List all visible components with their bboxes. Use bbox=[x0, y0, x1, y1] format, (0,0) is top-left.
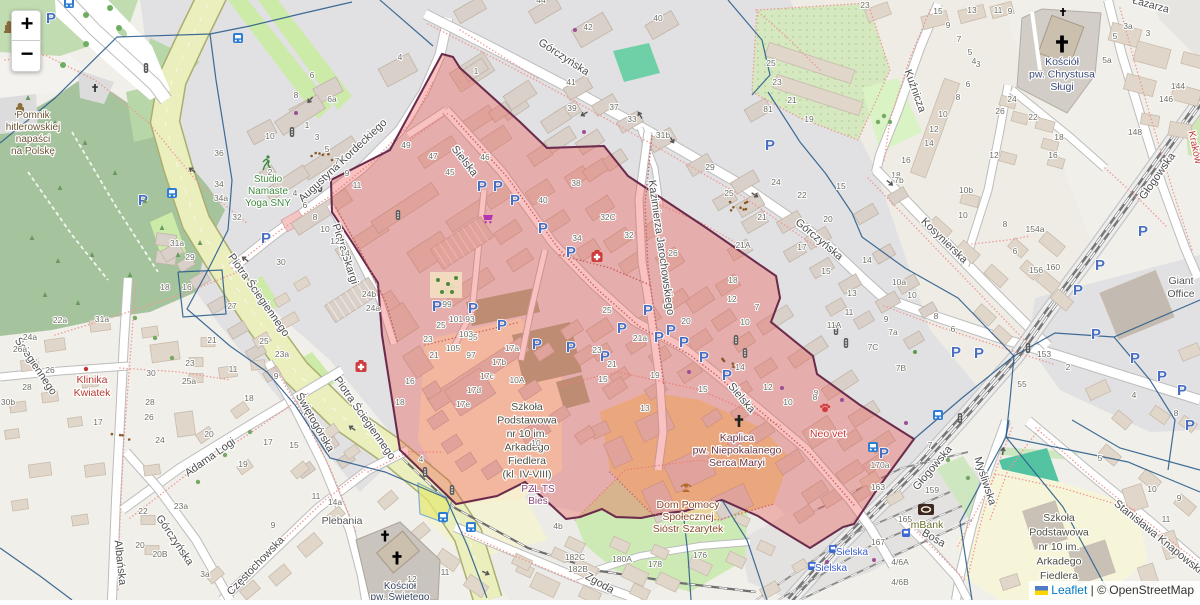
svg-text:10: 10 bbox=[531, 438, 541, 448]
svg-text:41: 41 bbox=[566, 77, 576, 87]
svg-text:146: 146 bbox=[1159, 94, 1173, 104]
svg-text:pw. Chrystusa: pw. Chrystusa bbox=[1029, 69, 1095, 81]
svg-text:32C: 32C bbox=[600, 212, 616, 222]
svg-text:P: P bbox=[477, 178, 487, 195]
svg-text:8: 8 bbox=[1003, 219, 1008, 229]
svg-text:16: 16 bbox=[901, 155, 911, 165]
svg-text:P: P bbox=[765, 137, 775, 154]
svg-text:23a: 23a bbox=[174, 501, 188, 511]
svg-text:26: 26 bbox=[45, 365, 55, 375]
svg-text:4: 4 bbox=[398, 52, 403, 62]
svg-text:P: P bbox=[974, 345, 984, 362]
svg-text:182C: 182C bbox=[565, 552, 585, 562]
svg-text:7B: 7B bbox=[896, 363, 907, 373]
svg-text:81: 81 bbox=[763, 104, 773, 114]
svg-text:24a: 24a bbox=[366, 303, 380, 313]
svg-text:26a: 26a bbox=[13, 344, 27, 354]
svg-text:23: 23 bbox=[772, 77, 782, 87]
svg-text:6: 6 bbox=[966, 79, 971, 89]
svg-text:19: 19 bbox=[804, 114, 814, 124]
svg-text:13: 13 bbox=[640, 403, 650, 413]
svg-text:Podstawowa: Podstawowa bbox=[1029, 527, 1089, 539]
svg-text:17d: 17d bbox=[467, 385, 481, 395]
svg-text:22: 22 bbox=[797, 190, 807, 200]
svg-text:11: 11 bbox=[229, 364, 238, 374]
svg-text:24: 24 bbox=[771, 177, 781, 187]
svg-text:nr 10 im.: nr 10 im. bbox=[1039, 541, 1080, 553]
svg-text:na Polskę: na Polskę bbox=[11, 146, 55, 157]
svg-text:4b: 4b bbox=[553, 521, 563, 531]
svg-text:34: 34 bbox=[214, 179, 224, 189]
svg-text:24: 24 bbox=[155, 435, 165, 445]
svg-text:12: 12 bbox=[330, 236, 340, 246]
svg-text:4: 4 bbox=[419, 454, 424, 464]
svg-text:PZL TS: PZL TS bbox=[521, 484, 555, 495]
svg-text:18: 18 bbox=[395, 397, 405, 407]
svg-text:103: 103 bbox=[459, 329, 473, 339]
svg-text:17e: 17e bbox=[456, 399, 470, 409]
svg-text:P: P bbox=[617, 320, 627, 337]
svg-text:Namaste: Namaste bbox=[248, 186, 288, 197]
svg-text:P: P bbox=[666, 322, 676, 339]
svg-text:7: 7 bbox=[755, 302, 760, 312]
svg-text:11: 11 bbox=[441, 567, 450, 577]
svg-text:P: P bbox=[510, 192, 520, 209]
svg-text:6a: 6a bbox=[327, 94, 337, 104]
svg-text:20: 20 bbox=[823, 214, 833, 224]
svg-text:15: 15 bbox=[821, 266, 831, 276]
svg-text:5a: 5a bbox=[1102, 55, 1112, 65]
svg-text:29: 29 bbox=[705, 162, 715, 172]
svg-text:23: 23 bbox=[423, 334, 433, 344]
svg-text:Kwiatek: Kwiatek bbox=[74, 387, 112, 399]
svg-text:Podstawowa: Podstawowa bbox=[497, 415, 557, 427]
svg-text:P: P bbox=[1138, 223, 1148, 240]
svg-text:P: P bbox=[432, 298, 442, 315]
svg-text:156: 156 bbox=[1029, 265, 1043, 275]
svg-text:Kaplica: Kaplica bbox=[720, 432, 755, 444]
svg-text:3: 3 bbox=[1146, 28, 1151, 38]
svg-text:Sióstr Szarytek: Sióstr Szarytek bbox=[653, 523, 724, 535]
svg-text:8: 8 bbox=[956, 92, 961, 102]
svg-text:1: 1 bbox=[474, 66, 479, 76]
svg-text:Sielska: Sielska bbox=[836, 547, 869, 558]
svg-text:P: P bbox=[643, 302, 653, 319]
svg-text:99: 99 bbox=[442, 299, 452, 309]
svg-text:Społecznej: Społecznej bbox=[662, 511, 713, 523]
svg-text:8: 8 bbox=[813, 392, 818, 402]
svg-text:17: 17 bbox=[263, 437, 273, 447]
svg-text:15: 15 bbox=[598, 374, 608, 384]
svg-text:4/6A: 4/6A bbox=[891, 557, 909, 567]
svg-text:19: 19 bbox=[238, 459, 248, 469]
svg-text:11: 11 bbox=[994, 5, 1003, 15]
svg-text:2: 2 bbox=[268, 167, 273, 177]
svg-text:37: 37 bbox=[609, 102, 619, 112]
svg-text:1: 1 bbox=[305, 120, 310, 130]
svg-text:18: 18 bbox=[1054, 132, 1064, 142]
svg-text:P: P bbox=[261, 230, 271, 247]
svg-text:22: 22 bbox=[1028, 112, 1038, 122]
svg-text:17c: 17c bbox=[480, 371, 494, 381]
svg-text:10: 10 bbox=[938, 109, 948, 119]
svg-text:17b: 17b bbox=[492, 357, 506, 367]
svg-text:167: 167 bbox=[871, 537, 885, 547]
svg-text:36: 36 bbox=[214, 148, 224, 158]
svg-text:182B: 182B bbox=[568, 564, 588, 574]
svg-text:15: 15 bbox=[698, 384, 708, 394]
svg-text:20B: 20B bbox=[152, 549, 167, 559]
svg-text:3: 3 bbox=[976, 59, 981, 69]
svg-text:24b: 24b bbox=[362, 289, 376, 299]
svg-text:23: 23 bbox=[185, 358, 195, 368]
svg-text:8: 8 bbox=[1174, 408, 1179, 418]
svg-text:10: 10 bbox=[740, 317, 750, 327]
svg-text:pw. Niepokalanego: pw. Niepokalanego bbox=[693, 445, 782, 457]
svg-text:P: P bbox=[1185, 417, 1195, 434]
svg-text:P: P bbox=[679, 334, 689, 351]
svg-text:17: 17 bbox=[93, 417, 103, 427]
svg-text:(kl. IV-VIII): (kl. IV-VIII) bbox=[502, 469, 551, 481]
svg-text:14: 14 bbox=[862, 255, 872, 265]
svg-text:5: 5 bbox=[1098, 453, 1103, 463]
svg-text:P: P bbox=[497, 317, 507, 334]
svg-text:32: 32 bbox=[624, 230, 634, 240]
svg-text:178: 178 bbox=[648, 559, 662, 569]
svg-text:23a: 23a bbox=[275, 349, 289, 359]
svg-text:22a: 22a bbox=[53, 315, 67, 325]
svg-text:4: 4 bbox=[293, 188, 298, 198]
svg-text:Kościół: Kościół bbox=[1045, 56, 1080, 68]
svg-text:49: 49 bbox=[401, 140, 411, 150]
svg-text:176: 176 bbox=[693, 550, 707, 560]
svg-text:23: 23 bbox=[860, 0, 870, 10]
svg-text:Dom Pomocy: Dom Pomocy bbox=[656, 499, 720, 511]
svg-text:45: 45 bbox=[445, 167, 455, 177]
svg-text:20: 20 bbox=[204, 429, 214, 439]
svg-text:9: 9 bbox=[345, 168, 350, 178]
svg-text:170a: 170a bbox=[871, 460, 890, 470]
svg-text:napaści: napaści bbox=[16, 134, 50, 145]
svg-text:Sługi: Sługi bbox=[1050, 81, 1073, 93]
svg-text:163: 163 bbox=[871, 482, 885, 492]
svg-text:P: P bbox=[1095, 257, 1105, 274]
svg-text:P: P bbox=[1157, 368, 1167, 385]
svg-text:P: P bbox=[1130, 350, 1140, 367]
svg-text:P: P bbox=[1073, 282, 1083, 299]
svg-text:18: 18 bbox=[728, 275, 738, 285]
svg-text:34: 34 bbox=[572, 233, 582, 243]
svg-text:P: P bbox=[1091, 326, 1101, 343]
svg-text:12: 12 bbox=[929, 124, 939, 134]
svg-text:8: 8 bbox=[934, 311, 939, 321]
svg-text:10b: 10b bbox=[959, 185, 973, 195]
svg-text:Bies: Bies bbox=[528, 496, 547, 507]
svg-text:29: 29 bbox=[185, 252, 195, 262]
svg-text:12: 12 bbox=[727, 294, 737, 304]
svg-text:154a: 154a bbox=[1026, 224, 1045, 234]
svg-text:Sielska: Sielska bbox=[815, 563, 848, 574]
svg-text:P: P bbox=[538, 220, 548, 237]
svg-text:17a: 17a bbox=[505, 343, 519, 353]
svg-text:Yoga SNY: Yoga SNY bbox=[245, 198, 291, 209]
svg-text:160: 160 bbox=[1046, 262, 1060, 272]
svg-text:7: 7 bbox=[928, 440, 933, 450]
svg-text:10a: 10a bbox=[892, 277, 906, 287]
svg-text:15: 15 bbox=[933, 6, 943, 16]
svg-text:31a: 31a bbox=[95, 314, 109, 324]
svg-text:20: 20 bbox=[681, 316, 691, 326]
svg-text:22: 22 bbox=[138, 506, 148, 516]
svg-text:21: 21 bbox=[757, 212, 767, 222]
svg-text:Plebania: Plebania bbox=[322, 515, 363, 527]
svg-text:P: P bbox=[566, 244, 576, 261]
svg-text:7C: 7C bbox=[868, 342, 879, 352]
svg-text:11: 11 bbox=[353, 180, 362, 190]
svg-text:46: 46 bbox=[480, 152, 490, 162]
svg-text:11: 11 bbox=[1162, 514, 1171, 524]
svg-text:14: 14 bbox=[735, 362, 745, 372]
svg-text:9: 9 bbox=[274, 371, 279, 381]
svg-text:21: 21 bbox=[607, 359, 617, 369]
svg-text:18: 18 bbox=[160, 282, 170, 292]
svg-text:180A: 180A bbox=[612, 554, 632, 564]
svg-text:21A: 21A bbox=[735, 240, 750, 250]
svg-text:47: 47 bbox=[428, 151, 438, 161]
svg-text:10: 10 bbox=[265, 131, 275, 141]
svg-text:nr 10 im.: nr 10 im. bbox=[507, 428, 548, 440]
svg-text:33: 33 bbox=[627, 114, 637, 124]
svg-text:P: P bbox=[532, 336, 542, 353]
svg-text:44: 44 bbox=[536, 0, 546, 5]
svg-text:165: 165 bbox=[898, 514, 912, 524]
svg-text:21: 21 bbox=[429, 350, 439, 360]
svg-text:30: 30 bbox=[146, 368, 156, 378]
svg-text:10: 10 bbox=[320, 224, 330, 234]
svg-text:40: 40 bbox=[653, 13, 663, 23]
svg-text:55: 55 bbox=[1017, 379, 1027, 389]
svg-text:6: 6 bbox=[1013, 246, 1018, 256]
svg-text:31a: 31a bbox=[170, 238, 184, 248]
svg-text:25: 25 bbox=[766, 58, 776, 68]
svg-text:19: 19 bbox=[650, 370, 660, 380]
svg-text:15: 15 bbox=[289, 440, 299, 450]
svg-text:12: 12 bbox=[989, 150, 999, 160]
svg-text:9: 9 bbox=[271, 520, 276, 530]
svg-text:13: 13 bbox=[967, 5, 977, 15]
svg-text:7: 7 bbox=[335, 156, 340, 166]
svg-text:97: 97 bbox=[466, 350, 476, 360]
svg-text:28: 28 bbox=[145, 397, 155, 407]
svg-text:153: 153 bbox=[1037, 349, 1051, 359]
svg-text:10: 10 bbox=[783, 397, 793, 407]
svg-text:8: 8 bbox=[313, 212, 318, 222]
svg-text:Serca Maryi: Serca Maryi bbox=[709, 457, 765, 469]
svg-text:105: 105 bbox=[446, 343, 460, 353]
svg-text:12: 12 bbox=[763, 382, 773, 392]
svg-text:4: 4 bbox=[1132, 390, 1137, 400]
svg-text:25: 25 bbox=[436, 320, 446, 330]
svg-text:Szkoła: Szkoła bbox=[511, 401, 543, 413]
svg-text:9: 9 bbox=[1008, 6, 1013, 16]
svg-text:26: 26 bbox=[668, 248, 678, 258]
svg-text:16: 16 bbox=[405, 376, 415, 386]
svg-text:4/6B: 4/6B bbox=[891, 577, 909, 587]
svg-text:12: 12 bbox=[407, 574, 417, 584]
svg-text:P: P bbox=[722, 367, 732, 384]
svg-text:pw. Świętego: pw. Świętego bbox=[371, 590, 430, 600]
svg-text:P: P bbox=[1177, 382, 1187, 399]
svg-text:11A: 11A bbox=[827, 320, 842, 330]
svg-text:Office: Office bbox=[1167, 288, 1194, 300]
svg-text:24a: 24a bbox=[23, 332, 37, 342]
svg-text:3a: 3a bbox=[1123, 21, 1133, 31]
svg-text:38: 38 bbox=[571, 178, 581, 188]
svg-text:P: P bbox=[951, 344, 961, 361]
svg-text:7a: 7a bbox=[888, 327, 898, 337]
svg-text:14: 14 bbox=[924, 138, 934, 148]
svg-text:Arkadego: Arkadego bbox=[505, 442, 550, 454]
svg-text:3a: 3a bbox=[200, 569, 210, 579]
svg-text:11: 11 bbox=[845, 307, 854, 317]
svg-text:27: 27 bbox=[227, 301, 237, 311]
svg-text:13: 13 bbox=[847, 288, 857, 298]
svg-text:26: 26 bbox=[144, 412, 154, 422]
svg-text:93: 93 bbox=[465, 314, 475, 324]
svg-text:25: 25 bbox=[724, 188, 734, 198]
svg-text:21: 21 bbox=[787, 95, 797, 105]
svg-text:mBank: mBank bbox=[911, 519, 944, 531]
svg-text:10: 10 bbox=[958, 210, 968, 220]
svg-text:hitlerowskiej: hitlerowskiej bbox=[6, 122, 60, 133]
svg-text:P: P bbox=[566, 339, 576, 356]
svg-text:11: 11 bbox=[312, 491, 321, 501]
svg-text:24: 24 bbox=[1007, 94, 1017, 104]
svg-text:Fiedlera: Fiedlera bbox=[508, 455, 546, 467]
svg-text:42: 42 bbox=[583, 22, 593, 32]
svg-text:7: 7 bbox=[957, 34, 962, 44]
svg-text:40: 40 bbox=[538, 195, 548, 205]
svg-text:9: 9 bbox=[884, 314, 889, 324]
svg-text:9: 9 bbox=[946, 20, 951, 30]
svg-text:8: 8 bbox=[294, 90, 299, 100]
svg-text:Szkoła: Szkoła bbox=[1043, 512, 1075, 524]
svg-text:5: 5 bbox=[325, 144, 330, 154]
svg-text:10: 10 bbox=[907, 290, 917, 300]
svg-text:2: 2 bbox=[1066, 362, 1071, 372]
svg-text:6: 6 bbox=[303, 200, 308, 210]
svg-text:25: 25 bbox=[602, 305, 612, 315]
svg-text:21a: 21a bbox=[633, 333, 647, 343]
svg-text:10: 10 bbox=[1147, 484, 1157, 494]
svg-text:4: 4 bbox=[972, 56, 977, 66]
svg-text:P: P bbox=[138, 192, 148, 209]
svg-text:26: 26 bbox=[995, 106, 1005, 116]
svg-text:10A: 10A bbox=[509, 375, 524, 385]
svg-text:Arkadego: Arkadego bbox=[1037, 556, 1082, 568]
svg-text:32: 32 bbox=[232, 212, 242, 222]
svg-text:148: 148 bbox=[1128, 127, 1142, 137]
svg-text:31b: 31b bbox=[656, 130, 670, 140]
svg-text:30: 30 bbox=[276, 257, 286, 267]
svg-text:23: 23 bbox=[592, 345, 602, 355]
svg-text:Pomnik: Pomnik bbox=[16, 110, 50, 121]
svg-text:6: 6 bbox=[310, 70, 315, 80]
svg-text:5: 5 bbox=[1113, 31, 1118, 41]
svg-text:P: P bbox=[46, 10, 56, 27]
svg-text:34a: 34a bbox=[214, 193, 228, 203]
svg-text:101: 101 bbox=[449, 314, 463, 324]
svg-text:14a: 14a bbox=[328, 497, 342, 507]
svg-text:P: P bbox=[493, 178, 503, 195]
svg-text:7b: 7b bbox=[894, 175, 904, 185]
svg-text:14: 14 bbox=[340, 248, 350, 258]
svg-text:39: 39 bbox=[567, 103, 577, 113]
svg-text:Neo vet: Neo vet bbox=[810, 428, 846, 440]
svg-text:16: 16 bbox=[1048, 150, 1058, 160]
svg-text:25: 25 bbox=[259, 336, 269, 346]
svg-text:28: 28 bbox=[22, 382, 32, 392]
svg-text:159: 159 bbox=[925, 485, 939, 495]
svg-text:P: P bbox=[654, 329, 664, 346]
svg-text:16: 16 bbox=[182, 282, 192, 292]
svg-text:P: P bbox=[699, 349, 709, 366]
svg-text:144: 144 bbox=[1171, 81, 1185, 91]
svg-text:6: 6 bbox=[951, 324, 956, 334]
svg-text:Klinika: Klinika bbox=[77, 374, 108, 386]
svg-text:30b: 30b bbox=[1, 397, 15, 407]
svg-text:Giant: Giant bbox=[1168, 275, 1193, 287]
svg-text:17: 17 bbox=[797, 242, 807, 252]
svg-text:18: 18 bbox=[244, 393, 254, 403]
svg-text:21: 21 bbox=[207, 335, 217, 345]
svg-text:15: 15 bbox=[836, 181, 846, 191]
svg-text:3: 3 bbox=[315, 132, 320, 142]
svg-text:20: 20 bbox=[135, 540, 145, 550]
svg-text:9: 9 bbox=[1177, 493, 1182, 503]
svg-text:25a: 25a bbox=[182, 376, 196, 386]
